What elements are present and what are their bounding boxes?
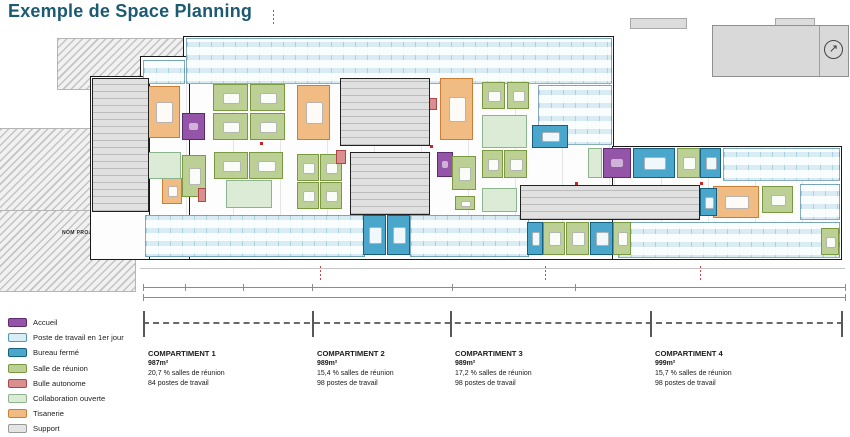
dimension-line-total bbox=[143, 297, 845, 298]
legend-swatch-tisanerie bbox=[8, 409, 27, 418]
terrace-line bbox=[140, 268, 845, 269]
compartment-name: COMPARTIMENT 3 bbox=[455, 349, 615, 359]
legend-label: Salle de réunion bbox=[33, 364, 88, 373]
legend-swatch-salle-reunion bbox=[8, 364, 27, 373]
axis-marker bbox=[700, 264, 701, 280]
compartment-tick bbox=[841, 311, 843, 337]
legend-item-accueil: Accueil bbox=[8, 315, 138, 330]
compartment-meeting-ratio: 15,4 % salles de réunion bbox=[317, 369, 477, 379]
room-accueil bbox=[437, 152, 453, 177]
compartment-desk-count: 98 postes de travail bbox=[655, 379, 815, 389]
legend-item-collaboration-ouverte: Collaboration ouverte bbox=[8, 391, 138, 406]
legend-swatch-collaboration-ouverte bbox=[8, 394, 27, 403]
room-meeting bbox=[504, 150, 527, 178]
room-open-collab bbox=[226, 180, 272, 208]
room-meeting bbox=[250, 84, 285, 111]
room-open-collab bbox=[588, 148, 602, 178]
site-key-block: ↗ bbox=[712, 25, 849, 77]
site-key-divider bbox=[819, 26, 820, 76]
desk-area bbox=[723, 148, 840, 181]
legend-swatch-accueil bbox=[8, 318, 27, 327]
desk-area bbox=[410, 215, 529, 257]
room-meeting bbox=[214, 152, 248, 179]
compartment-tick bbox=[450, 311, 452, 337]
compartment-2-stats: COMPARTIMENT 2 989m² 15,4 % salles de ré… bbox=[317, 349, 477, 389]
core-support bbox=[340, 78, 430, 146]
safety-marker bbox=[575, 182, 578, 185]
compartment-meeting-ratio: 20,7 % salles de réunion bbox=[148, 369, 308, 379]
legend-label: Collaboration ouverte bbox=[33, 394, 105, 403]
adjacent-area-hatch bbox=[0, 128, 91, 218]
compartment-desk-count: 84 postes de travail bbox=[148, 379, 308, 389]
room-meeting bbox=[677, 148, 700, 178]
room-meeting bbox=[250, 113, 285, 140]
legend-swatch-support bbox=[8, 424, 27, 433]
compartment-desk-count: 98 postes de travail bbox=[455, 379, 615, 389]
compartment-name: COMPARTIMENT 4 bbox=[655, 349, 815, 359]
room-office bbox=[700, 148, 721, 178]
room-open-collab bbox=[482, 115, 527, 148]
room-meeting bbox=[566, 222, 589, 255]
compartment-tick bbox=[312, 311, 314, 337]
room-tisanerie bbox=[713, 186, 759, 218]
compartment-division-line bbox=[143, 322, 843, 324]
compartment-meeting-ratio: 17,2 % salles de réunion bbox=[455, 369, 615, 379]
dimension-tick bbox=[185, 284, 186, 291]
legend-item-poste-travail: Poste de travail en 1er jour bbox=[8, 330, 138, 345]
safety-marker bbox=[260, 142, 263, 145]
room-meeting bbox=[482, 82, 505, 109]
page-title: Exemple de Space Planning bbox=[8, 1, 252, 22]
room-meeting bbox=[507, 82, 529, 109]
desk-area bbox=[800, 184, 840, 220]
room-accueil bbox=[182, 113, 205, 140]
compartment-area: 989m² bbox=[455, 359, 615, 369]
legend-label: Bulle autonome bbox=[33, 379, 86, 388]
room-office bbox=[633, 148, 675, 178]
dimension-tick bbox=[452, 284, 453, 291]
dimension-tick bbox=[575, 284, 576, 291]
room-office bbox=[590, 222, 613, 255]
dimension-tick bbox=[845, 284, 846, 291]
legend-label: Accueil bbox=[33, 318, 57, 327]
room-tisanerie bbox=[147, 86, 180, 138]
room-meeting bbox=[320, 182, 342, 209]
room-meeting bbox=[297, 154, 319, 181]
axis-marker bbox=[320, 264, 321, 280]
room-tisanerie bbox=[440, 78, 473, 140]
axis-marker bbox=[273, 8, 274, 24]
site-key-bar bbox=[630, 18, 687, 29]
legend-swatch-bulle-autonome bbox=[8, 379, 27, 388]
room-meeting bbox=[482, 150, 503, 178]
axis-marker bbox=[545, 264, 546, 280]
room-meeting bbox=[249, 152, 283, 179]
desk-area bbox=[143, 60, 185, 84]
legend-item-tisanerie: Tisanerie bbox=[8, 406, 138, 421]
legend-item-bureau-ferme: Bureau fermé bbox=[8, 345, 138, 360]
core-support bbox=[92, 78, 149, 212]
compartment-desk-count: 98 postes de travail bbox=[317, 379, 477, 389]
core-support bbox=[520, 185, 700, 220]
room-office bbox=[363, 215, 386, 255]
room-tisanerie bbox=[162, 178, 182, 204]
room-meeting bbox=[762, 186, 793, 213]
room-meeting bbox=[821, 228, 839, 255]
room-meeting bbox=[297, 182, 319, 209]
room-bubble bbox=[198, 188, 206, 202]
dimension-tick bbox=[243, 284, 244, 291]
dimension-tick bbox=[845, 294, 846, 301]
compartment-area: 987m² bbox=[148, 359, 308, 369]
desk-area bbox=[618, 222, 840, 258]
legend-item-salle-reunion: Salle de réunion bbox=[8, 361, 138, 376]
room-bubble bbox=[336, 150, 346, 164]
room-meeting bbox=[213, 84, 248, 111]
north-arrow-icon: ↗ bbox=[824, 40, 843, 59]
legend-item-bulle-autonome: Bulle autonome bbox=[8, 376, 138, 391]
core-support bbox=[350, 152, 430, 215]
safety-marker bbox=[430, 145, 433, 148]
dimension-tick bbox=[143, 284, 144, 291]
room-office bbox=[700, 188, 717, 216]
compartment-area: 989m² bbox=[317, 359, 477, 369]
dimension-tick bbox=[312, 284, 313, 291]
compartment-meeting-ratio: 15,7 % salles de réunion bbox=[655, 369, 815, 379]
room-office bbox=[532, 125, 568, 148]
room-office bbox=[527, 222, 543, 255]
legend-label: Poste de travail en 1er jour bbox=[33, 333, 124, 342]
compartment-area: 999m² bbox=[655, 359, 815, 369]
compartment-name: COMPARTIMENT 1 bbox=[148, 349, 308, 359]
legend-swatch-bureau-ferme bbox=[8, 348, 27, 357]
room-open-collab bbox=[482, 188, 517, 212]
desk-area bbox=[145, 215, 365, 257]
legend-label: Tisanerie bbox=[33, 409, 64, 418]
safety-marker bbox=[700, 182, 703, 185]
room-meeting bbox=[613, 222, 631, 255]
room-office bbox=[387, 215, 410, 255]
legend: Accueil Poste de travail en 1er jour Bur… bbox=[8, 315, 138, 437]
compartment-3-stats: COMPARTIMENT 3 989m² 17,2 % salles de ré… bbox=[455, 349, 615, 389]
legend-label: Support bbox=[33, 424, 60, 433]
room-tisanerie bbox=[297, 85, 330, 140]
compartment-1-stats: COMPARTIMENT 1 987m² 20,7 % salles de ré… bbox=[148, 349, 308, 389]
legend-label: Bureau fermé bbox=[33, 348, 79, 357]
room-meeting bbox=[213, 113, 248, 140]
legend-swatch-poste-travail bbox=[8, 333, 27, 342]
room-meeting bbox=[543, 222, 565, 255]
room-meeting bbox=[455, 196, 475, 210]
dimension-tick bbox=[143, 294, 144, 301]
compartment-name: COMPARTIMENT 2 bbox=[317, 349, 477, 359]
compartment-tick bbox=[650, 311, 652, 337]
room-meeting bbox=[452, 156, 476, 190]
room-accueil bbox=[603, 148, 631, 178]
compartment-tick bbox=[143, 311, 145, 337]
room-open-collab bbox=[147, 152, 181, 179]
dimension-line bbox=[143, 287, 845, 288]
compartment-4-stats: COMPARTIMENT 4 999m² 15,7 % salles de ré… bbox=[655, 349, 815, 389]
legend-item-support: Support bbox=[8, 421, 138, 436]
